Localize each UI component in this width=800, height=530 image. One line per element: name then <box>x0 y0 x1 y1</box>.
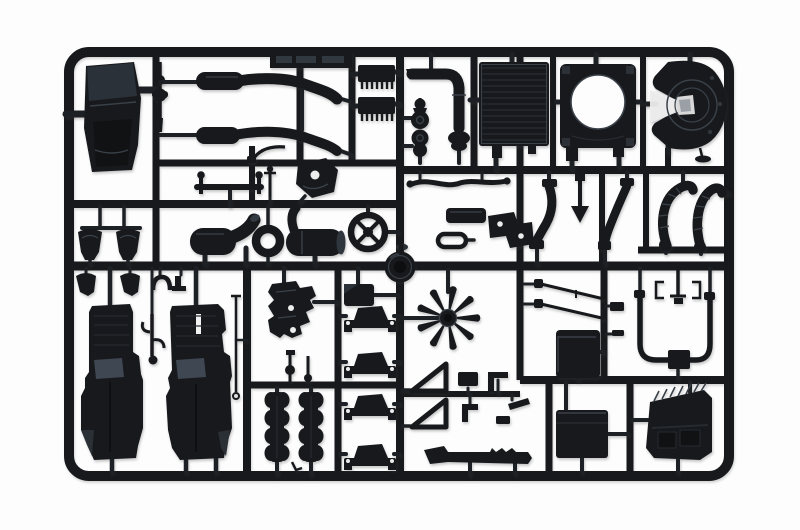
sprue-label-tag <box>270 52 352 68</box>
battery-box <box>556 382 628 472</box>
fan-shroud <box>556 54 641 170</box>
pedal-linkage <box>142 268 164 365</box>
muffler <box>286 208 346 264</box>
capsule-gasket <box>438 234 474 247</box>
engine-mount-bracket <box>340 306 400 332</box>
pipe-clamps <box>76 268 186 296</box>
arrow-bracket <box>571 174 589 223</box>
engine-mount-bracket <box>340 444 400 470</box>
radiator-fan <box>404 270 480 350</box>
corrugated-hoses <box>659 172 729 254</box>
cylinder-bank <box>265 388 290 474</box>
finned-cooler-1 <box>352 65 400 89</box>
wavy-hose <box>406 172 510 188</box>
fender-stay-left <box>529 172 557 264</box>
intake-elbow <box>190 213 261 264</box>
sprue-photo: Black injection-molded plastic model-kit… <box>0 0 800 530</box>
engine-block-right <box>166 268 232 472</box>
cylinder-bank <box>299 388 324 474</box>
pump-manifold <box>268 268 338 382</box>
cab-roof-deflector <box>66 62 158 172</box>
engine-block-left <box>81 268 143 472</box>
pipe-hanger <box>606 268 700 336</box>
pulley-2 <box>404 130 429 164</box>
cylinder-banks <box>265 388 324 474</box>
running-board <box>424 446 532 474</box>
junction-box <box>446 208 486 223</box>
tie-rods <box>524 279 606 319</box>
mudguard-brackets <box>78 206 140 264</box>
exhaust-pipe-lower <box>160 90 352 155</box>
gear-linkage <box>264 166 276 204</box>
engine-mount-bracket <box>340 352 400 378</box>
u-pipe <box>634 268 715 378</box>
fifth-wheel <box>646 54 727 163</box>
engine-mount-bracket <box>340 394 400 420</box>
seal-ring <box>256 206 280 264</box>
wheel-hub <box>385 240 416 283</box>
sprue-canvas: Black injection-molded plastic model-kit… <box>0 0 800 530</box>
gearbox-cover <box>296 158 338 204</box>
step-bracket <box>488 212 534 248</box>
radiator-core <box>470 54 549 170</box>
exhaust-pipe-upper <box>160 72 352 102</box>
pulley-1 <box>404 98 429 129</box>
spoked-ring <box>351 206 398 249</box>
equipment-box <box>556 330 604 380</box>
ribbed-cover <box>632 382 712 472</box>
finned-cooler-2 <box>352 97 400 121</box>
